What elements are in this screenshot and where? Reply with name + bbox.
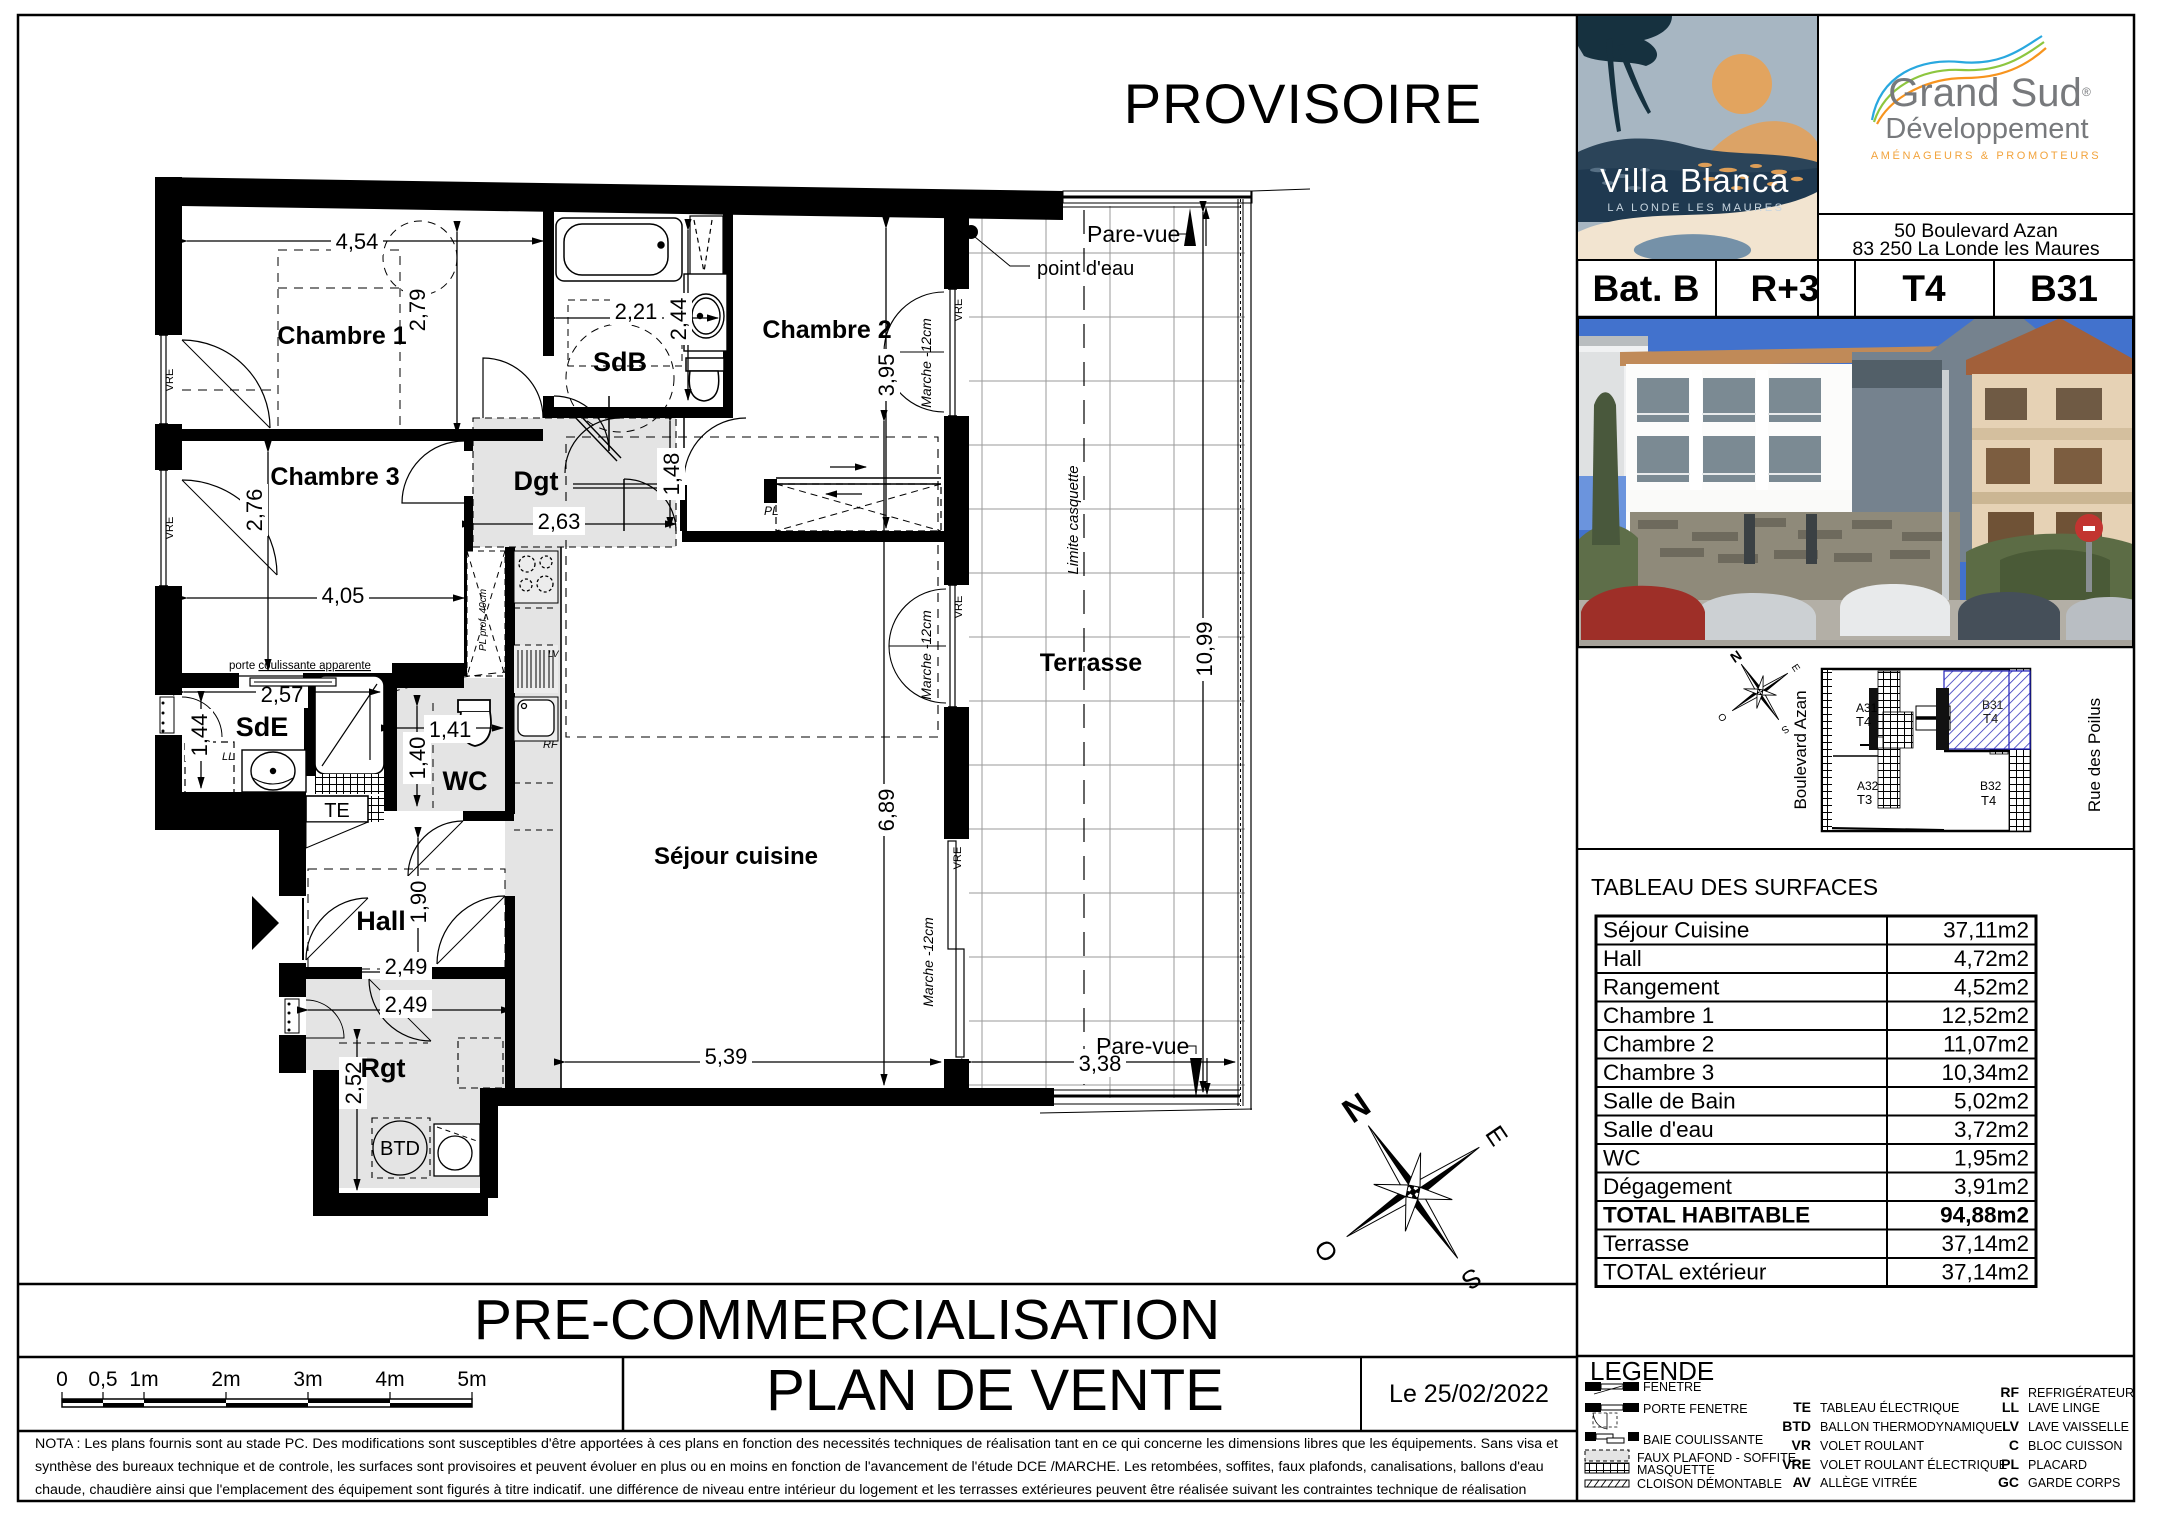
- svg-text:Terrasse: Terrasse: [1603, 1231, 1689, 1256]
- svg-text:Chambre 1: Chambre 1: [1603, 1003, 1714, 1028]
- svg-text:AV: AV: [1793, 1474, 1812, 1490]
- svg-text:Marche -12cm: Marche -12cm: [920, 917, 936, 1007]
- svg-text:TE: TE: [1793, 1399, 1811, 1415]
- svg-text:TABLEAU ÉLECTRIQUE: TABLEAU ÉLECTRIQUE: [1820, 1400, 1959, 1415]
- svg-text:Dégagement: Dégagement: [1603, 1174, 1733, 1199]
- svg-text:BALLON THERMODYNAMIQUE: BALLON THERMODYNAMIQUE: [1820, 1420, 2002, 1434]
- svg-text:2,49: 2,49: [385, 992, 428, 1017]
- svg-text:synthèse des bureaux technique: synthèse des bureaux technique et de con…: [35, 1459, 1544, 1475]
- svg-text:2,79: 2,79: [405, 289, 430, 332]
- svg-text:4,52m2: 4,52m2: [1954, 975, 2029, 1000]
- svg-text:TABLEAU DES SURFACES: TABLEAU DES SURFACES: [1591, 874, 1878, 900]
- svg-text:RF: RF: [2000, 1384, 2019, 1400]
- svg-text:2,76: 2,76: [242, 489, 267, 532]
- svg-text:2,63: 2,63: [538, 509, 581, 534]
- svg-text:6,89: 6,89: [874, 789, 899, 832]
- svg-text:37,11m2: 37,11m2: [1943, 918, 2029, 943]
- svg-text:1,48: 1,48: [659, 453, 684, 496]
- svg-text:GC: GC: [1998, 1474, 2019, 1490]
- svg-text:1,90: 1,90: [406, 881, 431, 924]
- svg-text:LV: LV: [2002, 1418, 2020, 1434]
- svg-text:VR: VR: [1792, 1437, 1811, 1453]
- svg-text:chaude, chaudière ainsi que l': chaude, chaudière ainsi que l'emplacemen…: [35, 1482, 1526, 1498]
- svg-text:TOTAL extérieur: TOTAL extérieur: [1603, 1260, 1767, 1285]
- svg-text:Pare-vue: Pare-vue: [1087, 221, 1180, 247]
- svg-text:Rgt: Rgt: [361, 1053, 406, 1083]
- svg-text:REFRIGÉRATEUR: REFRIGÉRATEUR: [2028, 1385, 2134, 1400]
- svg-text:BAIE COULISSANTE: BAIE COULISSANTE: [1643, 1433, 1763, 1447]
- svg-text:1,40: 1,40: [405, 737, 430, 780]
- svg-text:Rangement: Rangement: [1603, 975, 1720, 1000]
- svg-text:B31: B31: [2030, 268, 2098, 309]
- svg-text:Pare-vue: Pare-vue: [1096, 1033, 1189, 1059]
- svg-text:10,99: 10,99: [1192, 621, 1217, 676]
- svg-text:ALLÈGE VITRÉE: ALLÈGE VITRÉE: [1820, 1475, 1917, 1490]
- svg-text:12,52m2: 12,52m2: [1941, 1003, 2029, 1028]
- svg-text:Bat. B: Bat. B: [1593, 268, 1700, 309]
- svg-text:10,34m2: 10,34m2: [1941, 1060, 2029, 1085]
- svg-text:S: S: [1456, 1262, 1487, 1297]
- svg-text:MASQUETTE: MASQUETTE: [1637, 1463, 1715, 1477]
- svg-text:1,95m2: 1,95m2: [1954, 1146, 2029, 1171]
- svg-text:Limite casquette: Limite casquette: [1065, 465, 1082, 574]
- svg-text:LAVE VAISSELLE: LAVE VAISSELLE: [2028, 1420, 2129, 1434]
- svg-text:BTD: BTD: [380, 1138, 420, 1160]
- svg-text:Grand Sud: Grand Sud: [1888, 71, 2081, 115]
- svg-text:Hall: Hall: [356, 906, 406, 936]
- svg-text:11,07m2: 11,07m2: [1943, 1032, 2029, 1057]
- svg-text:Chambre 2: Chambre 2: [1603, 1032, 1714, 1057]
- svg-text:3,72m2: 3,72m2: [1954, 1117, 2029, 1142]
- svg-text:LA LONDE LES MAURES: LA LONDE LES MAURES: [1607, 202, 1784, 214]
- svg-text:1,41: 1,41: [429, 717, 472, 742]
- svg-text:2,21: 2,21: [615, 299, 658, 324]
- svg-text:PL: PL: [764, 504, 779, 518]
- svg-text:Chambre 1: Chambre 1: [277, 322, 406, 350]
- svg-text:Boulevard Azan: Boulevard Azan: [1791, 690, 1810, 809]
- svg-text:A31: A31: [1856, 701, 1878, 715]
- svg-text:PLACARD: PLACARD: [2028, 1458, 2087, 1472]
- svg-text:B31: B31: [1982, 698, 2004, 712]
- svg-text:3m: 3m: [293, 1368, 322, 1391]
- svg-text:5m: 5m: [457, 1368, 486, 1391]
- svg-text:N: N: [1727, 647, 1744, 666]
- svg-text:0,5: 0,5: [88, 1368, 117, 1391]
- svg-text:Chambre 3: Chambre 3: [270, 463, 399, 491]
- svg-text:SdE: SdE: [236, 712, 289, 742]
- svg-text:PRE-COMMERCIALISATION: PRE-COMMERCIALISATION: [474, 1288, 1220, 1352]
- svg-text:Développement: Développement: [1885, 113, 2088, 145]
- svg-text:T4: T4: [1902, 268, 1946, 309]
- svg-text:C: C: [2009, 1437, 2019, 1453]
- svg-text:NOTA : Les plans fournis sont: NOTA : Les plans fournis sont au stade P…: [35, 1436, 1558, 1452]
- svg-text:VRE: VRE: [164, 517, 176, 540]
- svg-text:point d'eau: point d'eau: [1037, 258, 1134, 280]
- svg-text:T4: T4: [1983, 711, 1998, 726]
- svg-text:®: ®: [2082, 85, 2091, 99]
- svg-text:N: N: [1336, 1086, 1378, 1131]
- svg-text:VRE: VRE: [953, 596, 965, 619]
- svg-text:94,88m2: 94,88m2: [1940, 1203, 2029, 1228]
- svg-text:Le 25/02/2022: Le 25/02/2022: [1389, 1380, 1549, 1408]
- svg-text:1,44: 1,44: [187, 714, 212, 757]
- svg-text:A32: A32: [1857, 779, 1879, 793]
- svg-text:O: O: [1308, 1234, 1344, 1268]
- svg-text:SdB: SdB: [593, 347, 647, 377]
- svg-text:4,05: 4,05: [322, 583, 365, 608]
- svg-text:CLOISON DÉMONTABLE: CLOISON DÉMONTABLE: [1637, 1476, 1782, 1491]
- svg-text:4,72m2: 4,72m2: [1954, 946, 2029, 971]
- svg-text:LAVE LINGE: LAVE LINGE: [2028, 1401, 2100, 1415]
- svg-text:4,54: 4,54: [336, 229, 379, 254]
- svg-text:Salle d'eau: Salle d'eau: [1603, 1117, 1714, 1142]
- svg-text:LL: LL: [222, 751, 234, 763]
- svg-text:2,44: 2,44: [666, 298, 691, 341]
- svg-text:TE: TE: [324, 800, 350, 822]
- svg-text:PROVISOIRE: PROVISOIRE: [1124, 72, 1483, 135]
- svg-text:Chambre 3: Chambre 3: [1603, 1060, 1714, 1085]
- svg-text:porte coulissante apparente: porte coulissante apparente: [229, 660, 371, 672]
- svg-text:T4: T4: [1856, 714, 1871, 729]
- svg-text:LV: LV: [548, 649, 560, 659]
- svg-text:0: 0: [56, 1368, 68, 1391]
- svg-text:5,02m2: 5,02m2: [1954, 1089, 2029, 1114]
- svg-text:2,49: 2,49: [385, 954, 428, 979]
- svg-text:PORTE FENETRE: PORTE FENETRE: [1643, 1402, 1748, 1416]
- svg-text:3,91m2: 3,91m2: [1954, 1174, 2029, 1199]
- svg-text:O: O: [1716, 710, 1730, 723]
- svg-text:VRE: VRE: [953, 299, 965, 322]
- svg-text:RF: RF: [543, 739, 559, 751]
- svg-text:Terrasse: Terrasse: [1040, 649, 1142, 677]
- svg-text:37,14m2: 37,14m2: [1941, 1260, 2029, 1285]
- svg-text:Marche -12cm: Marche -12cm: [918, 610, 934, 700]
- svg-text:T4: T4: [1981, 793, 1996, 808]
- svg-text:FENETRE: FENETRE: [1643, 1380, 1701, 1394]
- svg-text:Villa Blanca: Villa Blanca: [1600, 162, 1790, 199]
- svg-text:BTD: BTD: [1782, 1418, 1811, 1434]
- svg-text:E: E: [1789, 662, 1802, 674]
- svg-text:E: E: [1479, 1120, 1514, 1151]
- svg-text:Séjour cuisine: Séjour cuisine: [654, 843, 818, 870]
- svg-text:5,39: 5,39: [705, 1044, 748, 1069]
- svg-text:B32: B32: [1980, 779, 2002, 793]
- svg-text:VRE: VRE: [952, 847, 964, 870]
- svg-text:GARDE CORPS: GARDE CORPS: [2028, 1476, 2120, 1490]
- svg-text:37,14m2: 37,14m2: [1941, 1231, 2029, 1256]
- svg-text:Séjour Cuisine: Séjour Cuisine: [1603, 918, 1749, 943]
- svg-text:PL: PL: [2001, 1456, 2019, 1472]
- svg-text:Marche -12cm: Marche -12cm: [918, 318, 934, 408]
- svg-text:T3: T3: [1857, 792, 1872, 807]
- svg-text:AMÉNAGEURS & PROMOTEURS: AMÉNAGEURS & PROMOTEURS: [1871, 149, 2101, 162]
- svg-text:BLOC CUISSON: BLOC CUISSON: [2028, 1439, 2122, 1453]
- svg-text:Chambre 2: Chambre 2: [762, 316, 891, 344]
- svg-text:VRE: VRE: [1782, 1456, 1811, 1472]
- svg-text:83 250 La Londe les Maures: 83 250 La Londe les Maures: [1852, 238, 2099, 260]
- svg-text:WC: WC: [443, 766, 488, 796]
- svg-text:PLAN DE VENTE: PLAN DE VENTE: [766, 1358, 1224, 1423]
- svg-text:Rue des Poilus: Rue des Poilus: [2085, 698, 2104, 812]
- svg-text:Salle de Bain: Salle de Bain: [1603, 1089, 1736, 1114]
- svg-text:4m: 4m: [375, 1368, 404, 1391]
- svg-text:VOLET ROULANT: VOLET ROULANT: [1820, 1439, 1924, 1453]
- svg-text:R+3: R+3: [1751, 268, 1820, 309]
- svg-text:1m: 1m: [129, 1368, 158, 1391]
- svg-text:S: S: [1779, 722, 1791, 735]
- svg-text:2m: 2m: [211, 1368, 240, 1391]
- svg-text:Dgt: Dgt: [514, 466, 559, 496]
- svg-text:Hall: Hall: [1603, 946, 1642, 971]
- svg-text:LL: LL: [2002, 1399, 2020, 1415]
- svg-text:VOLET ROULANT ÉLECTRIQUE: VOLET ROULANT ÉLECTRIQUE: [1820, 1457, 2007, 1472]
- svg-text:TOTAL HABITABLE: TOTAL HABITABLE: [1603, 1203, 1810, 1228]
- svg-text:WC: WC: [1603, 1146, 1641, 1171]
- svg-text:3,95: 3,95: [874, 354, 899, 397]
- svg-text:PL prof. 40cm: PL prof. 40cm: [478, 589, 489, 651]
- svg-text:VRE: VRE: [164, 369, 176, 392]
